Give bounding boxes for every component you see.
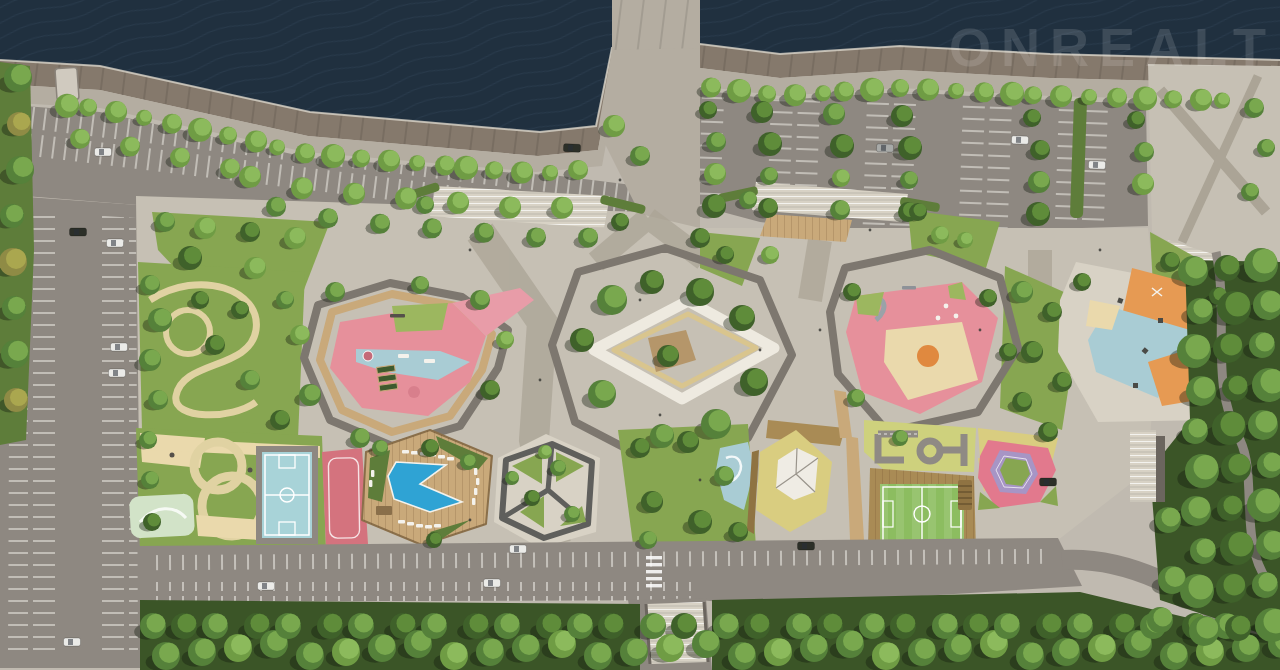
tree xyxy=(350,428,370,448)
pedestrian xyxy=(659,414,662,417)
car xyxy=(563,144,580,153)
tree xyxy=(266,197,286,217)
tree xyxy=(476,638,504,666)
tree xyxy=(830,200,850,220)
tree xyxy=(974,82,994,102)
pg2-equip-dot xyxy=(954,314,959,319)
tree xyxy=(1181,496,1211,526)
tree xyxy=(551,197,573,219)
pedestrian xyxy=(469,249,472,252)
pg2-orange-structure xyxy=(917,345,939,367)
tree xyxy=(702,194,726,218)
tree xyxy=(70,129,90,149)
tree xyxy=(1252,572,1278,598)
fe-equip xyxy=(1133,383,1138,388)
tree xyxy=(550,460,566,476)
tree xyxy=(1024,86,1042,104)
tree xyxy=(640,613,666,639)
pg1-bench-1 xyxy=(398,354,409,358)
tree xyxy=(276,291,294,309)
tree xyxy=(1133,86,1157,110)
tree xyxy=(611,213,629,231)
car xyxy=(64,638,81,646)
tree xyxy=(290,325,310,345)
car xyxy=(1011,136,1028,145)
tree xyxy=(370,214,390,234)
pc-wood-ladder xyxy=(958,480,972,510)
tree xyxy=(979,289,997,307)
tree xyxy=(564,506,580,522)
tree xyxy=(1189,616,1219,646)
tree xyxy=(917,78,939,100)
tree xyxy=(859,613,885,639)
tree xyxy=(139,431,157,449)
tree xyxy=(1021,341,1043,363)
tree xyxy=(141,471,159,489)
tree xyxy=(758,85,776,103)
tree xyxy=(6,156,34,184)
tree xyxy=(1026,202,1050,226)
tree xyxy=(244,257,266,279)
tree xyxy=(1214,93,1230,109)
pool-cabana xyxy=(376,506,392,515)
tree xyxy=(692,630,720,658)
tree xyxy=(603,115,625,137)
tree xyxy=(321,144,345,168)
pedestrian xyxy=(619,179,622,182)
tree xyxy=(372,440,388,456)
tree xyxy=(1073,273,1091,291)
tree xyxy=(657,345,679,367)
tree xyxy=(908,638,936,666)
tree xyxy=(1088,634,1116,662)
tree xyxy=(1182,418,1208,444)
tree xyxy=(411,276,429,294)
tree xyxy=(317,613,343,639)
tree xyxy=(1052,638,1080,666)
tree xyxy=(511,162,533,184)
road-stalls-south xyxy=(150,582,700,601)
tree xyxy=(470,290,490,310)
tree xyxy=(1213,333,1243,363)
tree xyxy=(760,167,778,185)
tree xyxy=(890,613,916,639)
tree xyxy=(1177,334,1211,368)
tree xyxy=(270,410,290,430)
tree xyxy=(620,638,648,666)
tree xyxy=(524,490,540,506)
tree xyxy=(231,301,249,319)
tree xyxy=(505,471,519,485)
tree xyxy=(639,531,657,549)
tree xyxy=(1214,255,1240,281)
tree xyxy=(1000,82,1024,106)
tree xyxy=(900,171,918,189)
tree xyxy=(817,613,843,639)
tree xyxy=(245,131,267,153)
tree xyxy=(332,638,360,666)
tree xyxy=(421,613,447,639)
tree xyxy=(409,155,425,171)
tree xyxy=(494,613,520,639)
tree xyxy=(205,335,225,355)
tree xyxy=(1052,372,1072,392)
tree xyxy=(568,160,588,180)
tree xyxy=(1244,248,1278,282)
tree xyxy=(800,634,828,662)
tree xyxy=(512,634,540,662)
tree xyxy=(191,291,209,309)
car xyxy=(258,582,275,590)
tree xyxy=(1155,507,1181,533)
tree xyxy=(716,246,734,264)
tree xyxy=(79,98,97,116)
tree xyxy=(325,282,345,302)
pedestrian xyxy=(699,479,702,482)
tree xyxy=(1186,376,1216,406)
tree xyxy=(1081,89,1097,105)
tree xyxy=(944,634,972,662)
tree xyxy=(1160,252,1180,272)
tree xyxy=(496,331,514,349)
pg2-equip-dot xyxy=(944,304,949,309)
tree xyxy=(440,642,468,670)
tree xyxy=(240,222,260,242)
tree xyxy=(1248,410,1278,440)
tree xyxy=(706,132,726,152)
tree xyxy=(834,82,854,102)
tree xyxy=(148,390,168,410)
tree xyxy=(701,409,731,439)
site-plan-canvas xyxy=(0,0,1280,670)
tree xyxy=(299,384,321,406)
tree xyxy=(764,638,792,666)
tree xyxy=(152,642,180,670)
tree xyxy=(578,228,598,248)
tree xyxy=(1,340,29,368)
tree xyxy=(188,118,212,142)
tree xyxy=(690,228,710,248)
tree xyxy=(202,613,228,639)
tree xyxy=(957,232,973,248)
tree xyxy=(948,83,964,99)
tree xyxy=(1216,573,1246,603)
tree xyxy=(909,203,927,221)
tree xyxy=(761,246,779,264)
tree xyxy=(570,328,594,352)
tree xyxy=(739,191,757,209)
tree xyxy=(597,285,627,315)
tree xyxy=(786,613,812,639)
tree xyxy=(499,196,521,218)
car xyxy=(484,579,501,587)
tree xyxy=(728,522,748,542)
pink-court xyxy=(322,448,368,548)
tree xyxy=(1220,531,1254,565)
tree xyxy=(275,613,301,639)
tree xyxy=(295,143,315,163)
tree xyxy=(830,134,854,158)
pg1-play-dome xyxy=(408,386,420,398)
tree xyxy=(898,136,922,160)
pedestrian xyxy=(469,519,472,522)
pg2-swing xyxy=(902,286,916,290)
tree xyxy=(598,613,624,639)
tree xyxy=(1127,111,1145,129)
tree xyxy=(395,187,417,209)
tree xyxy=(148,308,172,332)
dp-equip-dot xyxy=(170,453,175,458)
tree xyxy=(348,613,374,639)
tree xyxy=(584,642,612,670)
tree xyxy=(474,223,494,243)
tree xyxy=(219,127,237,145)
tree xyxy=(463,613,489,639)
tree xyxy=(422,218,442,238)
tree xyxy=(688,510,712,534)
tree xyxy=(823,103,845,125)
tree xyxy=(284,227,306,249)
tree xyxy=(892,430,908,446)
tree xyxy=(435,155,455,175)
car xyxy=(111,343,128,351)
tree xyxy=(155,212,175,232)
tree xyxy=(1217,495,1243,521)
tree xyxy=(1134,142,1154,162)
tree xyxy=(378,150,400,172)
tree xyxy=(224,634,252,662)
tree xyxy=(650,424,674,448)
tree xyxy=(460,454,476,470)
pg1-bench-top xyxy=(390,314,405,318)
tree xyxy=(178,246,202,270)
tree xyxy=(641,491,663,513)
pedestrian xyxy=(759,349,762,352)
tree xyxy=(728,642,756,670)
aerial-masterplan-render: ONREALT xyxy=(0,0,1280,670)
car xyxy=(1040,478,1057,486)
tree xyxy=(105,101,127,123)
tree xyxy=(143,513,161,531)
tree xyxy=(713,613,739,639)
tree xyxy=(0,204,24,228)
pg1-bench-2 xyxy=(424,359,435,363)
tree xyxy=(1038,422,1058,442)
pg1-carousel xyxy=(363,351,373,361)
tree xyxy=(170,148,190,168)
tree xyxy=(815,85,831,101)
tree xyxy=(1257,139,1275,157)
tree xyxy=(7,112,31,136)
tree xyxy=(1212,411,1246,445)
tree xyxy=(1178,256,1208,286)
tree xyxy=(1067,613,1093,639)
tree xyxy=(120,137,140,157)
tree xyxy=(139,349,161,371)
tree xyxy=(567,613,593,639)
pedestrian xyxy=(979,329,982,332)
tree xyxy=(1036,613,1062,639)
tree xyxy=(836,630,864,658)
tree xyxy=(239,166,261,188)
pedestrian xyxy=(819,329,822,332)
tree xyxy=(454,156,478,180)
car xyxy=(70,228,87,236)
tree xyxy=(1011,281,1033,303)
tree xyxy=(640,270,664,294)
car xyxy=(95,148,112,156)
car xyxy=(109,369,126,377)
tree xyxy=(343,183,365,205)
tree xyxy=(727,79,751,103)
east-stair-lines xyxy=(1130,430,1156,502)
dp-equip-dot xyxy=(248,468,253,473)
tree xyxy=(1225,615,1251,641)
tree xyxy=(269,139,285,155)
tree xyxy=(1249,332,1275,358)
tree xyxy=(55,94,79,118)
tree xyxy=(291,177,313,199)
basketball-court xyxy=(256,446,318,544)
pg2-equip-dot xyxy=(936,316,941,321)
tree xyxy=(699,101,717,119)
tree xyxy=(1190,538,1216,564)
tree xyxy=(4,388,28,412)
tree xyxy=(426,532,442,548)
tree xyxy=(744,613,770,639)
east-ramp-wall xyxy=(1156,436,1165,502)
tree xyxy=(1244,98,1264,118)
tree xyxy=(832,169,850,187)
tree xyxy=(296,642,324,670)
tree xyxy=(0,248,27,276)
tree xyxy=(784,84,806,106)
tree xyxy=(1185,454,1219,488)
tree xyxy=(1132,173,1154,195)
tree xyxy=(1247,488,1280,522)
pedestrian xyxy=(539,379,542,382)
tree xyxy=(740,368,768,396)
tree xyxy=(860,78,884,102)
fe-equip xyxy=(1158,318,1163,323)
tree xyxy=(843,283,861,301)
traffic-town xyxy=(864,420,976,472)
tree xyxy=(352,149,370,167)
tree xyxy=(1164,90,1182,108)
tree xyxy=(188,638,216,666)
tree xyxy=(240,370,260,390)
tree xyxy=(480,380,500,400)
tree xyxy=(1012,392,1032,412)
tree xyxy=(931,226,949,244)
tree xyxy=(526,227,546,247)
tree xyxy=(171,613,197,639)
tree xyxy=(677,431,699,453)
tree xyxy=(701,78,721,98)
tree xyxy=(758,198,778,218)
tree xyxy=(588,380,616,408)
tree xyxy=(1023,109,1041,127)
tree xyxy=(1107,88,1127,108)
tree xyxy=(136,110,152,126)
tree xyxy=(729,305,755,331)
tree xyxy=(162,114,182,134)
car xyxy=(876,144,893,153)
tree xyxy=(416,196,434,214)
tree xyxy=(1042,302,1062,322)
tree xyxy=(318,208,338,228)
tree xyxy=(1030,140,1050,160)
tree xyxy=(368,634,396,662)
car xyxy=(1088,161,1105,170)
tree xyxy=(1222,375,1248,401)
pedestrian xyxy=(1099,249,1102,252)
tree xyxy=(140,613,166,639)
tree xyxy=(671,613,697,639)
pedestrian xyxy=(639,299,642,302)
tree xyxy=(1217,291,1251,325)
tree xyxy=(220,158,240,178)
tree xyxy=(447,192,469,214)
car xyxy=(107,239,124,247)
tree xyxy=(1190,89,1212,111)
tree xyxy=(630,146,650,166)
tree xyxy=(1160,642,1188,670)
tree xyxy=(847,389,865,407)
tree xyxy=(1158,566,1186,594)
pier-joint-lines xyxy=(612,0,700,50)
tree xyxy=(994,613,1020,639)
tree xyxy=(1221,453,1251,483)
tree xyxy=(891,105,913,127)
tree xyxy=(758,132,782,156)
tree xyxy=(714,466,734,486)
tree xyxy=(1241,183,1259,201)
tree xyxy=(421,439,439,457)
pg1-garden-boxes xyxy=(377,365,398,391)
tree xyxy=(538,445,552,459)
car xyxy=(510,545,527,553)
tree xyxy=(1187,298,1213,324)
tree xyxy=(1050,85,1072,107)
tree xyxy=(485,161,503,179)
tree xyxy=(630,438,650,458)
tree xyxy=(140,275,160,295)
tree xyxy=(891,79,909,97)
tree xyxy=(542,165,558,181)
tree xyxy=(1028,171,1050,193)
car xyxy=(798,542,815,550)
tree xyxy=(1147,607,1173,633)
tree xyxy=(704,163,726,185)
tree xyxy=(751,101,773,123)
tree xyxy=(2,296,26,320)
tree xyxy=(194,217,216,239)
tree xyxy=(872,642,900,670)
tree xyxy=(999,343,1017,361)
tree xyxy=(1016,642,1044,670)
tree xyxy=(686,278,714,306)
tree xyxy=(4,64,32,92)
pedestrian xyxy=(869,229,872,232)
